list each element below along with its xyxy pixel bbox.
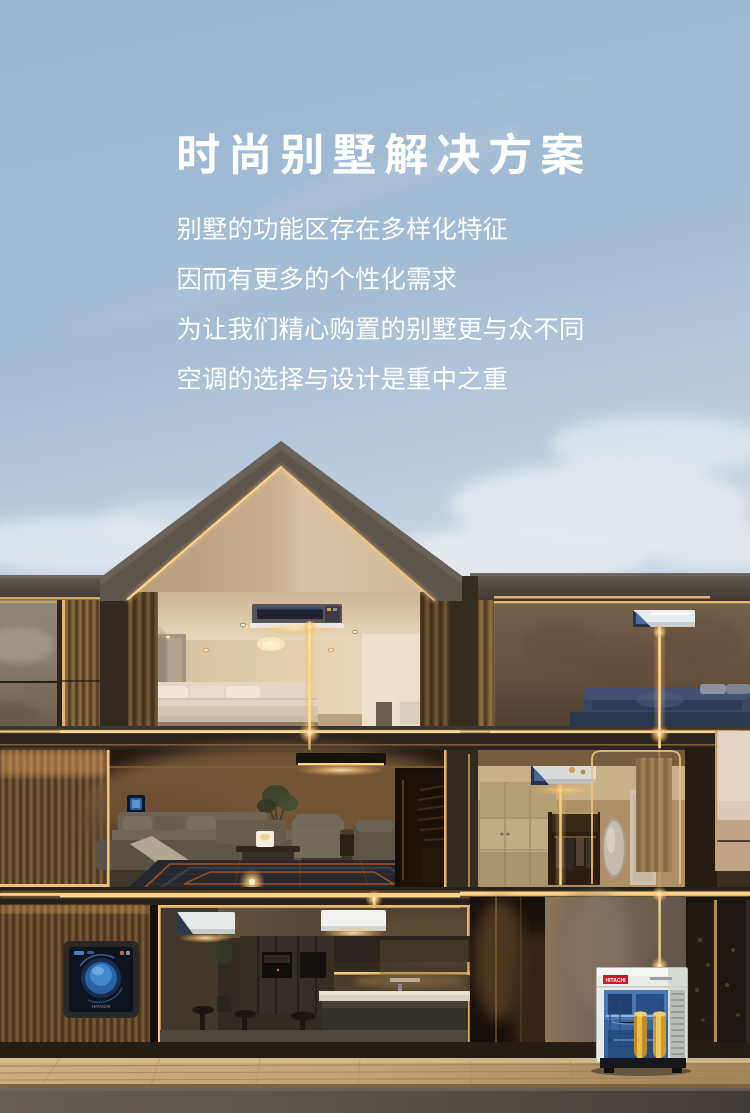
svg-text:HITACHI: HITACHI bbox=[606, 978, 627, 984]
svg-text:HITACHI: HITACHI bbox=[92, 1004, 110, 1009]
